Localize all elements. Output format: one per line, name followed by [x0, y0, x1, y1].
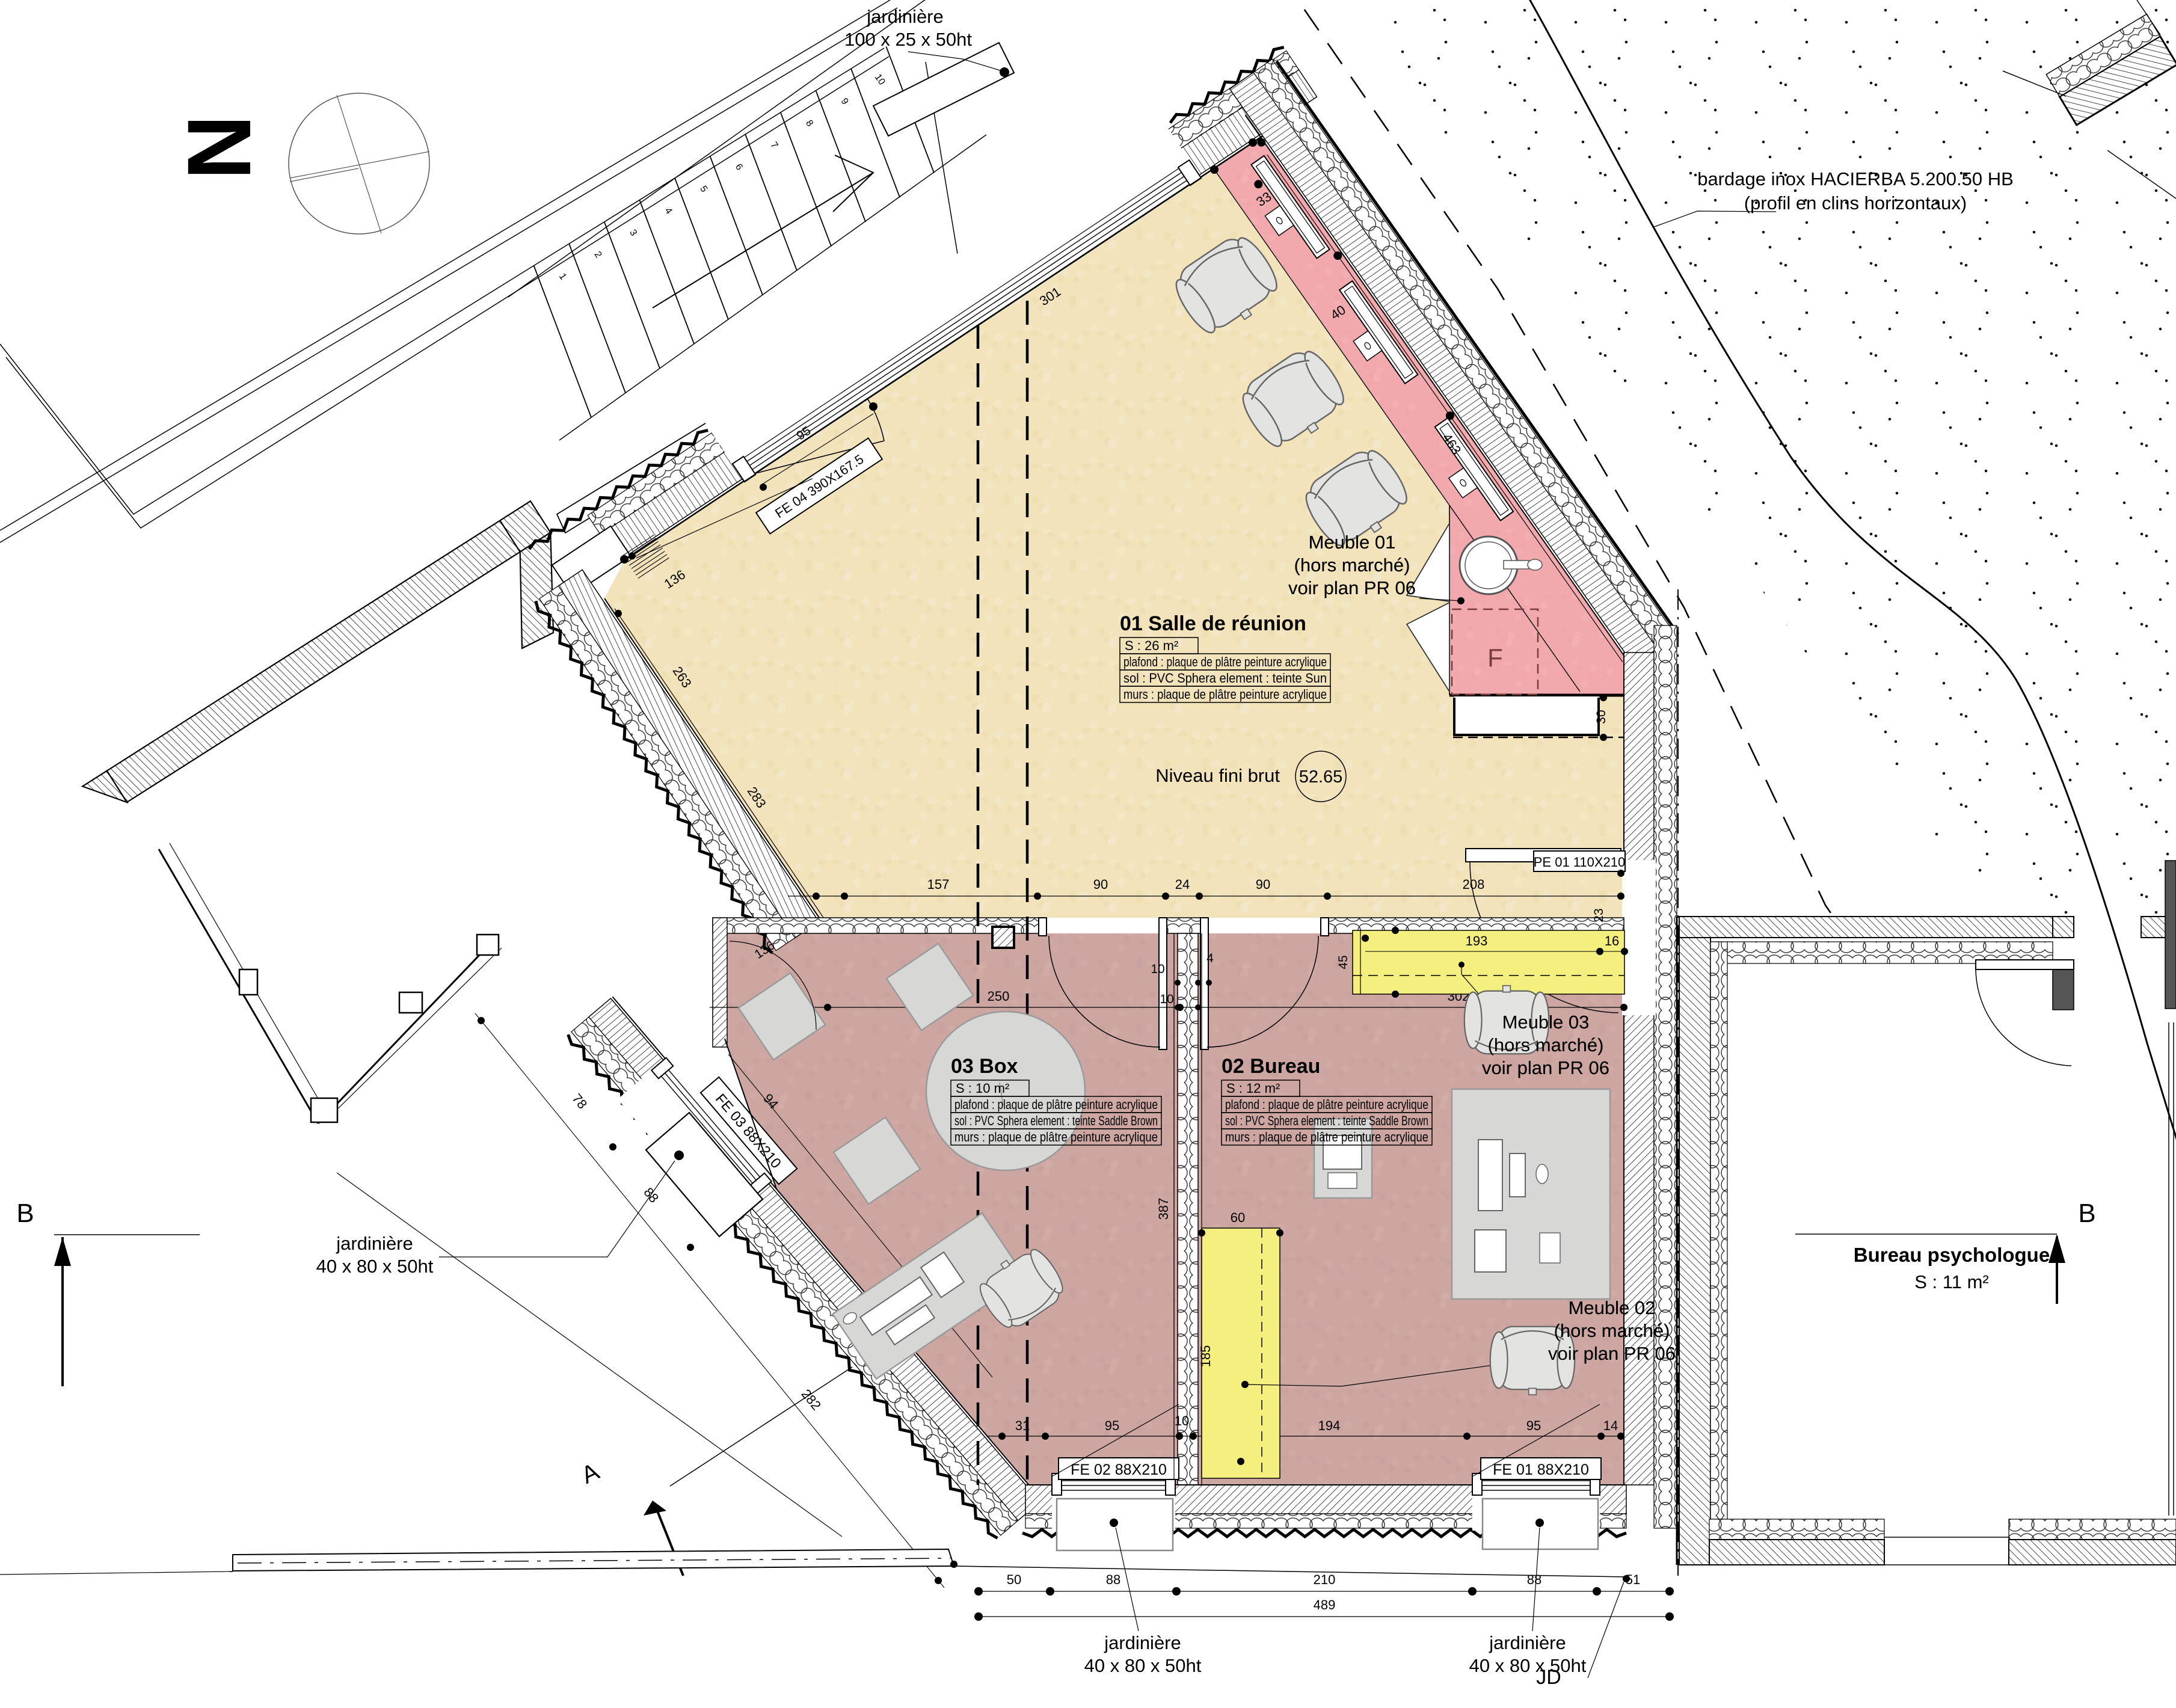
svg-text:40 x 80 x 50ht: 40 x 80 x 50ht: [1469, 1655, 1587, 1676]
svg-text:S : 11 m²: S : 11 m²: [1914, 1271, 1988, 1292]
svg-text:01 Salle de réunion: 01 Salle de réunion: [1120, 612, 1306, 635]
svg-text:40 x 80 x 50ht: 40 x 80 x 50ht: [1084, 1655, 1202, 1676]
svg-text:Meuble 01: Meuble 01: [1309, 532, 1396, 553]
svg-text:185: 185: [1198, 1345, 1213, 1368]
svg-text:10: 10: [1175, 1413, 1189, 1428]
svg-text:(hors marché): (hors marché): [1488, 1034, 1604, 1055]
svg-text:voir plan PR 06: voir plan PR 06: [1288, 577, 1416, 598]
svg-text:N: N: [168, 115, 269, 180]
svg-text:489: 489: [1314, 1597, 1336, 1612]
svg-text:194: 194: [1318, 1418, 1341, 1433]
svg-text:murs : plaque de plâtre peintu: murs : plaque de plâtre peinture acryliq…: [1123, 687, 1327, 702]
svg-text:14: 14: [1603, 1418, 1618, 1433]
svg-text:90: 90: [1256, 877, 1270, 892]
svg-text:(hors marché): (hors marché): [1554, 1320, 1670, 1341]
svg-text:24: 24: [1175, 877, 1190, 892]
svg-text:Meuble 03: Meuble 03: [1502, 1012, 1590, 1033]
svg-text:4: 4: [1206, 951, 1214, 965]
svg-text:60: 60: [1231, 1210, 1245, 1225]
svg-text:S : 12 m²: S : 12 m²: [1226, 1081, 1280, 1096]
svg-text:02 Bureau: 02 Bureau: [1222, 1055, 1320, 1078]
svg-text:95: 95: [1105, 1418, 1119, 1433]
svg-text:B: B: [16, 1199, 34, 1228]
svg-text:PE 01 110X210: PE 01 110X210: [1534, 855, 1626, 870]
svg-text:plafond : plaque de plâtre pei: plafond : plaque de plâtre peinture acry…: [1123, 654, 1327, 669]
svg-text:S : 10 m²: S : 10 m²: [956, 1081, 1009, 1096]
svg-text:100 x 25 x 50ht: 100 x 25 x 50ht: [844, 29, 972, 50]
svg-text:sol : PVC Sphera element : tei: sol : PVC Sphera element : teinte Saddle…: [954, 1113, 1158, 1128]
svg-text:Meuble 02: Meuble 02: [1569, 1297, 1656, 1318]
svg-text:plafond : plaque de plâtre pei: plafond : plaque de plâtre peinture acry…: [1225, 1097, 1428, 1112]
svg-text:S : 26 m²: S : 26 m²: [1125, 638, 1178, 653]
svg-text:88: 88: [1527, 1572, 1541, 1587]
svg-text:30: 30: [1594, 710, 1608, 723]
svg-text:JD: JD: [1536, 1666, 1561, 1689]
svg-text:FE 02 88X210: FE 02 88X210: [1071, 1461, 1167, 1478]
svg-text:387: 387: [1156, 1198, 1171, 1220]
svg-text:FE 01 88X210: FE 01 88X210: [1493, 1461, 1589, 1478]
svg-text:88: 88: [1106, 1572, 1120, 1587]
svg-text:Bureau psychologue: Bureau psychologue: [1854, 1244, 2050, 1266]
svg-text:B: B: [2078, 1199, 2095, 1228]
svg-text:voir plan PR 06: voir plan PR 06: [1482, 1057, 1609, 1078]
svg-text:sol : PVC Sphera element : tei: sol : PVC Sphera element : teinte Sun: [1123, 671, 1327, 686]
svg-text:sol : PVC Sphera element : tei: sol : PVC Sphera element : teinte Saddle…: [1225, 1113, 1428, 1128]
svg-text:jardinière: jardinière: [1489, 1632, 1566, 1653]
svg-text:10: 10: [1160, 992, 1173, 1006]
svg-text:10: 10: [1151, 962, 1164, 976]
svg-text:jardinière: jardinière: [336, 1233, 413, 1254]
svg-text:157: 157: [927, 877, 950, 892]
svg-text:Niveau fini brut: Niveau fini brut: [1155, 765, 1280, 786]
svg-text:90: 90: [1093, 877, 1108, 892]
svg-text:voir plan PR 06: voir plan PR 06: [1548, 1343, 1676, 1364]
svg-text:250: 250: [988, 989, 1010, 1004]
svg-text:jardinière: jardinière: [1104, 1632, 1181, 1653]
svg-text:03 Box: 03 Box: [951, 1055, 1018, 1078]
svg-text:208: 208: [1463, 877, 1485, 892]
svg-text:(profil en clins horizontaux): (profil en clins horizontaux): [1744, 192, 1967, 213]
svg-text:52.65: 52.65: [1299, 767, 1343, 787]
svg-text:F: F: [1487, 644, 1503, 672]
svg-text:(hors marché): (hors marché): [1294, 554, 1410, 576]
svg-text:193: 193: [1466, 933, 1488, 948]
svg-text:murs : plaque de plâtre peintu: murs : plaque de plâtre peinture acryliq…: [954, 1129, 1158, 1144]
svg-text:50: 50: [1007, 1572, 1021, 1587]
svg-text:40 x 80 x 50ht: 40 x 80 x 50ht: [316, 1256, 434, 1277]
svg-text:murs : plaque de plâtre peintu: murs : plaque de plâtre peinture acryliq…: [1225, 1129, 1428, 1144]
svg-text:bardage inox HACIERBA 5.200.50: bardage inox HACIERBA 5.200.50 HB: [1697, 168, 2014, 189]
svg-text:16: 16: [1605, 933, 1619, 948]
svg-text:jardinière: jardinière: [866, 6, 944, 27]
svg-text:95: 95: [1526, 1418, 1541, 1433]
svg-text:plafond : plaque de plâtre pei: plafond : plaque de plâtre peinture acry…: [954, 1097, 1158, 1112]
svg-text:210: 210: [1314, 1572, 1336, 1587]
svg-text:23: 23: [1592, 908, 1606, 922]
svg-text:45: 45: [1336, 955, 1350, 969]
